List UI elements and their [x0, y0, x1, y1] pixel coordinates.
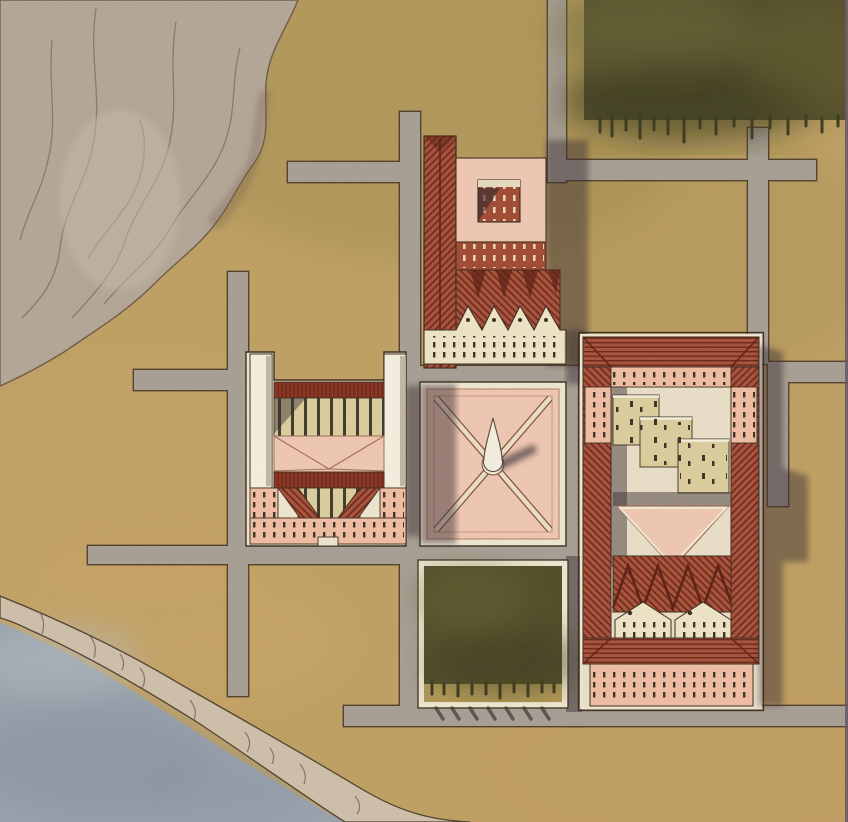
site-plan-svg — [0, 0, 848, 822]
site-plan-painting — [0, 0, 848, 822]
watercolor-grain — [0, 0, 848, 822]
